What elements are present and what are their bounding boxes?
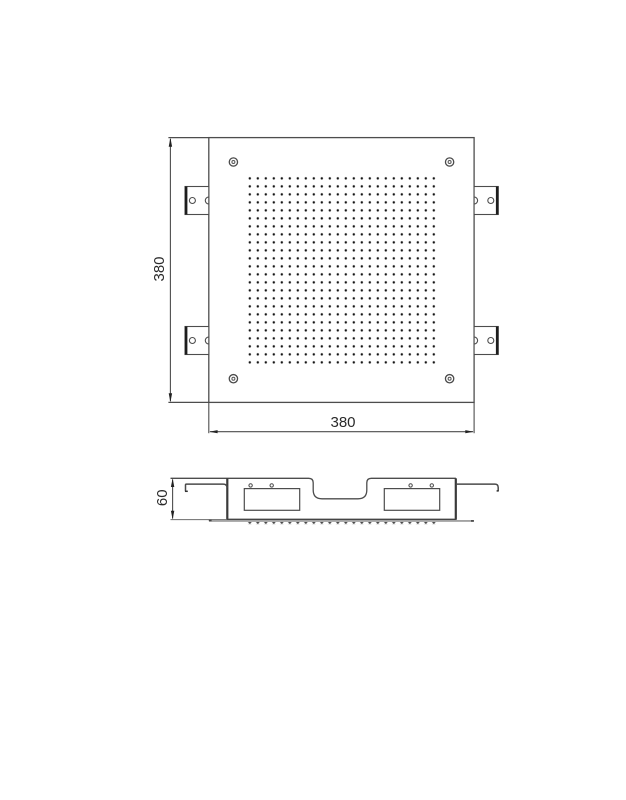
svg-text:60: 60 bbox=[154, 489, 171, 506]
svg-text:380: 380 bbox=[330, 414, 355, 431]
svg-text:380: 380 bbox=[151, 256, 168, 281]
